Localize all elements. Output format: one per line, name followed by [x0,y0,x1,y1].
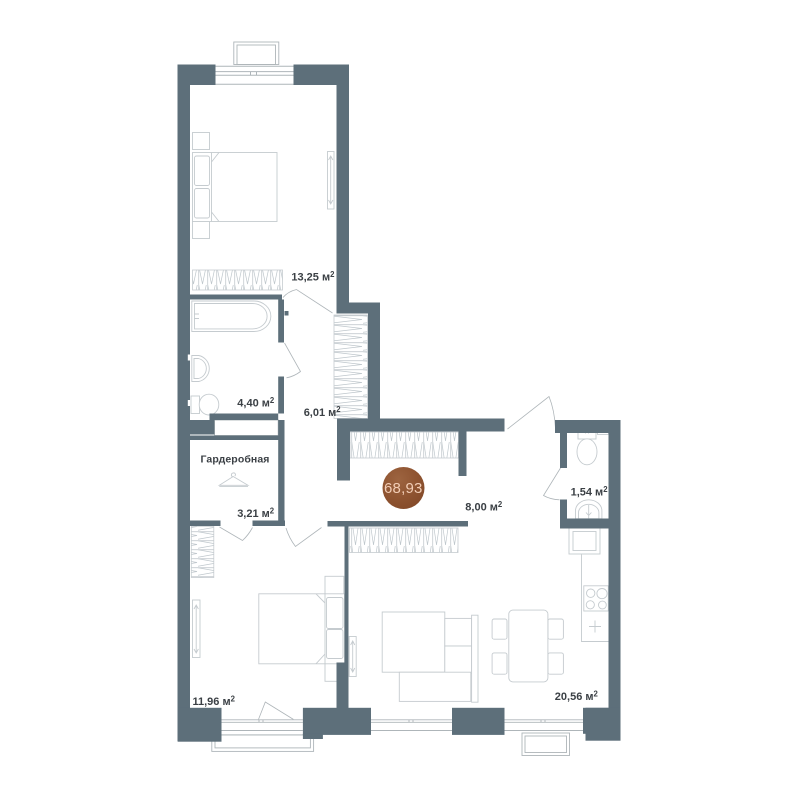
svg-text:4,40 м2: 4,40 м2 [237,396,275,410]
svg-text:Гардеробная: Гардеробная [201,453,270,465]
svg-text:3,21 м2: 3,21 м2 [237,506,275,520]
svg-text:13,25 м2: 13,25 м2 [291,270,335,284]
svg-text:11,96 м2: 11,96 м2 [193,694,236,708]
svg-text:1,54 м2: 1,54 м2 [571,485,609,499]
svg-text:8,00 м2: 8,00 м2 [465,500,503,514]
svg-text:68,93: 68,93 [384,480,423,497]
svg-text:20,56 м2: 20,56 м2 [555,689,599,703]
svg-text:6,01 м2: 6,01 м2 [304,405,342,419]
